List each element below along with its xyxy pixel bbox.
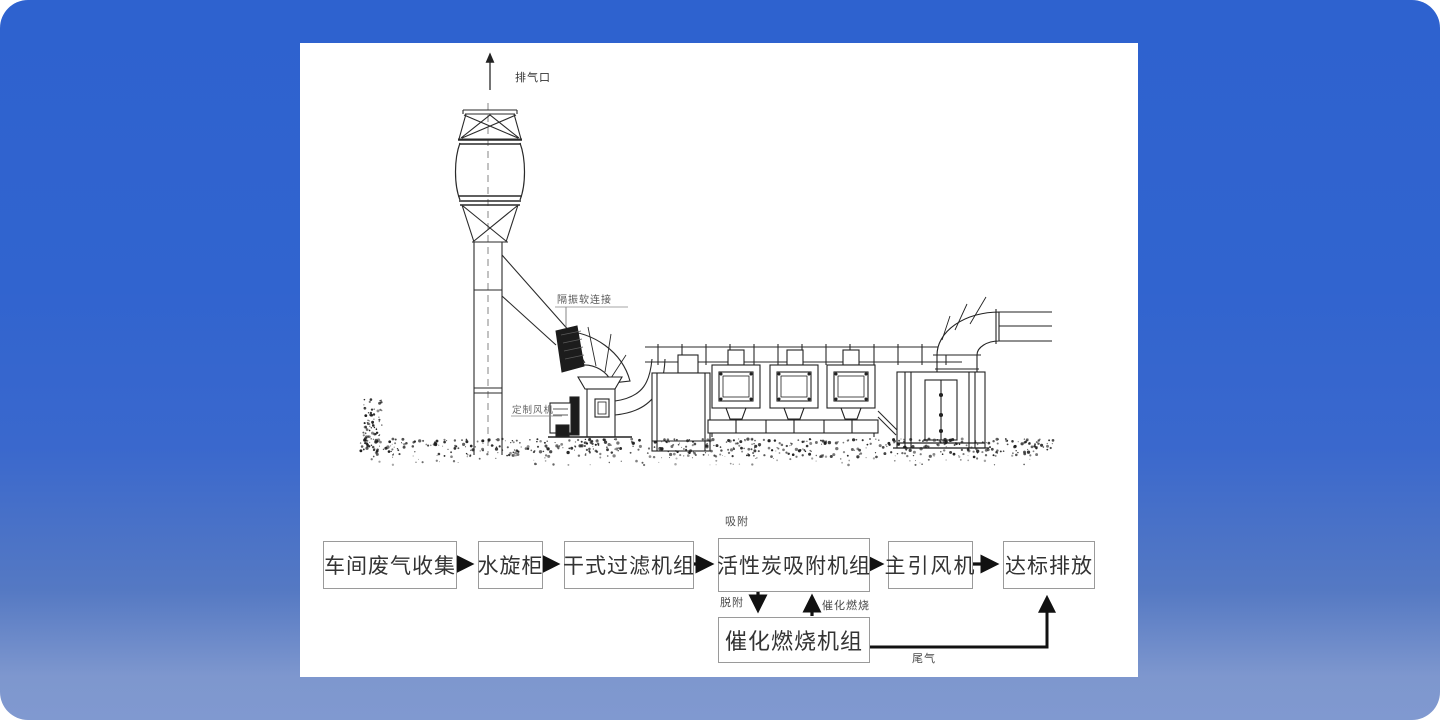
flow-box-activated-carbon-unit: 活性炭吸附机组 bbox=[718, 538, 870, 592]
filter-box bbox=[652, 355, 710, 451]
chimney-stack bbox=[456, 55, 525, 455]
flow-box-compliant-discharge: 达标排放 bbox=[1003, 541, 1095, 589]
right-fan-unit bbox=[893, 372, 989, 448]
exhaust-outlet-label: 排气口 bbox=[515, 69, 551, 85]
flow-box-workshop-gas-collection: 车间废气收集 bbox=[323, 541, 457, 589]
flow-box-dry-filter-unit: 干式过滤机组 bbox=[564, 541, 694, 589]
tail-gas-line bbox=[869, 599, 1047, 647]
flow-box-catalytic-combustion-unit: 催化燃烧机组 bbox=[718, 617, 870, 663]
carbon-adsorption-unit bbox=[708, 350, 878, 437]
custom-fan-label: 定制风机 bbox=[512, 404, 554, 416]
diagram-panel: 隔振软连接 定制风机 bbox=[300, 43, 1138, 677]
flow-box-water-spin-cabinet: 水旋柜 bbox=[478, 541, 543, 589]
desorption-label: 脱附 bbox=[720, 594, 744, 610]
soft-connection-label: 隔振软连接 bbox=[557, 293, 612, 306]
tail-gas-label: 尾气 bbox=[912, 650, 936, 666]
catalytic-combustion-label: 催化燃烧 bbox=[822, 597, 870, 613]
elbow-duct-right bbox=[933, 297, 1052, 372]
flow-box-main-fan: 主引风机 bbox=[888, 541, 973, 589]
adsorption-label: 吸附 bbox=[725, 513, 749, 529]
fan-unit bbox=[548, 377, 632, 437]
screenshot-background: 隔振软连接 定制风机 bbox=[0, 0, 1440, 720]
